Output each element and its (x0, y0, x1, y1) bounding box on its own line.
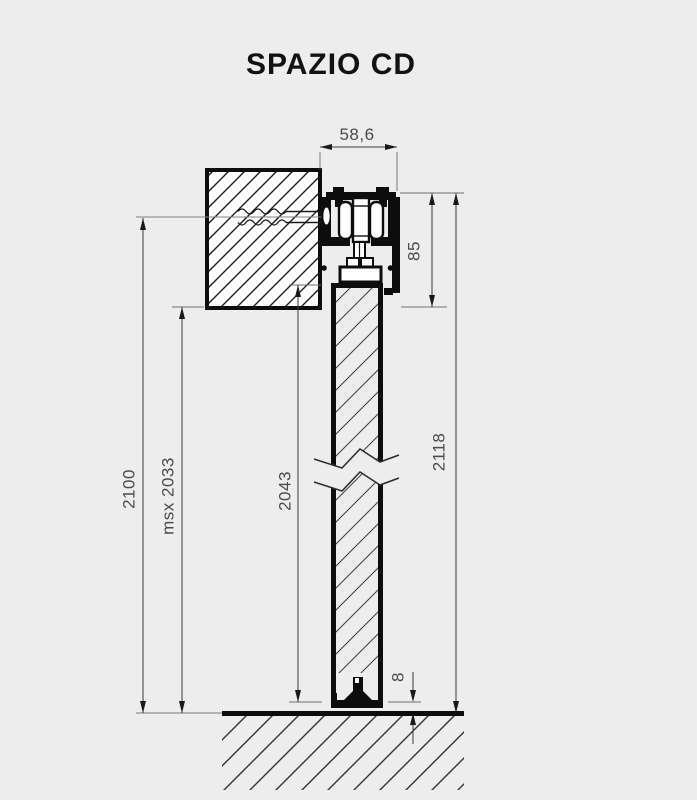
dim-label-door-height: 2043 (276, 471, 295, 511)
dimension-opening-height: 2100 (120, 218, 147, 713)
dimension-track-width: 58,6 (320, 125, 397, 191)
dim-label-system-height: 2118 (430, 433, 449, 472)
door-panel (331, 283, 383, 708)
dimension-header-height: 85 (400, 193, 464, 307)
floor-guide (332, 677, 383, 708)
drawing-page: SPAZIO CD (0, 0, 697, 800)
dim-label-max-door-height: msx 2033 (159, 457, 178, 535)
hanger-bracket (340, 242, 381, 282)
dimension-system-height: 2118 (430, 193, 460, 713)
dim-label-track-width: 58,6 (339, 125, 374, 144)
wall-header-section (207, 170, 320, 308)
technical-drawing: 58,6 85 2118 2100 (0, 0, 697, 800)
dimension-max-door-height: msx 2033 (159, 307, 205, 713)
dimension-door-height: 2043 (276, 285, 323, 702)
roller-carriage (335, 197, 387, 242)
dim-label-opening-height: 2100 (120, 469, 139, 509)
dim-label-header-height: 85 (405, 241, 424, 261)
dim-label-floor-gap: 8 (389, 672, 408, 682)
